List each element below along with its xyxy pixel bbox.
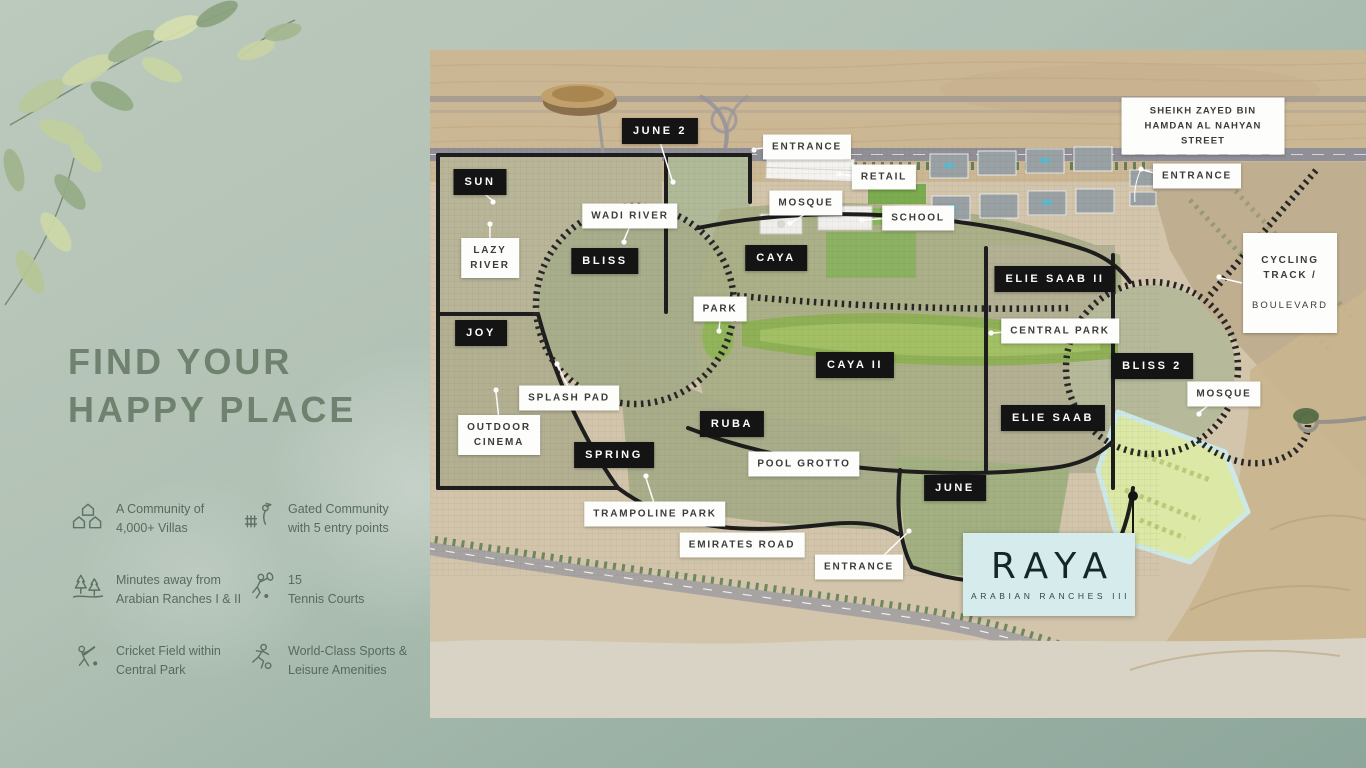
feature-tennis-courts: 15 Tennis Courts: [242, 569, 415, 609]
cycling-track-line1: CYCLING TRACK /: [1252, 253, 1328, 283]
district-label-caya-ii: CAYA II: [816, 352, 894, 378]
page-title-line1: FIND YOUR: [68, 338, 356, 386]
page-title-line2: HAPPY PLACE: [68, 386, 356, 434]
amenity-label-splash-pad: SPLASH PAD: [519, 386, 619, 411]
amenity-label-school: SCHOOL: [882, 206, 954, 231]
district-label-elie-saab: ELIE SAAB: [1001, 405, 1105, 431]
amenity-label-mosque-right: MOSQUE: [1187, 382, 1260, 407]
feature-list: A Community of 4,000+ Villas Gated Commu…: [70, 498, 415, 680]
feature-gated-community: Gated Community with 5 entry points: [242, 498, 415, 538]
sports-icon: [242, 640, 278, 676]
amenity-label-central-park: CENTRAL PARK: [1001, 319, 1119, 344]
district-label-june: JUNE: [924, 475, 986, 501]
road-label-emirates-road: EMIRATES ROAD: [680, 533, 805, 558]
district-label-bliss-2: BLISS 2: [1111, 353, 1193, 379]
amenity-label-outdoor-cinema: OUTDOOR CINEMA: [458, 415, 540, 455]
raya-logo-subtitle: ARABIAN RANCHES III: [968, 591, 1130, 601]
amenity-label-wadi-river: WADI RIVER: [582, 204, 677, 229]
amenity-label-pool-grotto: POOL GROTTO: [748, 452, 859, 477]
page-title: FIND YOUR HAPPY PLACE: [68, 338, 356, 434]
amenity-label-mosque-top: MOSQUE: [769, 191, 842, 216]
page: { "page": { "background_top": "#bcc9bd",…: [0, 0, 1366, 768]
district-label-ruba: RUBA: [700, 411, 764, 437]
sand-fade-graphic: [430, 638, 1366, 718]
gated-community-icon: [242, 498, 278, 534]
amenity-label-park: PARK: [694, 297, 747, 322]
entrance-label-top-right: ENTRANCE: [1153, 164, 1241, 189]
feature-community-villas: A Community of 4,000+ Villas: [70, 498, 242, 538]
feature-text: Gated Community with 5 entry points: [288, 498, 389, 538]
district-label-june2: JUNE 2: [622, 118, 698, 144]
community-villas-icon: [70, 498, 106, 534]
entrance-label-bottom: ENTRANCE: [815, 555, 903, 580]
cricket-icon: [70, 640, 106, 676]
district-label-elie-saab-ii: ELIE SAAB II: [994, 266, 1115, 292]
feature-text: Minutes away from Arabian Ranches I & II: [116, 569, 241, 609]
district-label-caya: CAYA: [745, 245, 807, 271]
feature-world-class-sports: World-Class Sports & Leisure Amenities: [242, 640, 415, 680]
feature-text: A Community of 4,000+ Villas: [116, 498, 204, 538]
feature-cricket-field: Cricket Field within Central Park: [70, 640, 242, 680]
district-label-joy: JOY: [455, 320, 507, 346]
feature-text: 15 Tennis Courts: [288, 569, 364, 609]
amenity-label-retail: RETAIL: [852, 165, 916, 190]
amenity-label-cycling-track: CYCLING TRACK / BOULEVARD: [1243, 233, 1337, 333]
district-label-bliss: BLISS: [571, 248, 638, 274]
entrance-label-top-left: ENTRANCE: [763, 135, 851, 160]
tennis-icon: [242, 569, 278, 605]
masterplan-map: JUNE 2 SUN BLISS JOY CAYA CAYA II ELIE S…: [430, 50, 1366, 718]
district-label-sun: SUN: [453, 169, 506, 195]
raya-logo-box: RAYA ARABIAN RANCHES III: [963, 533, 1135, 616]
feature-minutes-away: Minutes away from Arabian Ranches I & II: [70, 569, 242, 609]
amenity-label-lazy-river: LAZY RIVER: [461, 238, 519, 278]
trees-icon: [70, 569, 106, 605]
raya-brand-logo: RAYA: [982, 549, 1116, 585]
feature-text: Cricket Field within Central Park: [116, 640, 221, 680]
feature-text: World-Class Sports & Leisure Amenities: [288, 640, 407, 680]
amenity-label-trampoline-park: TRAMPOLINE PARK: [584, 502, 725, 527]
district-label-spring: SPRING: [574, 442, 654, 468]
watercolor-leaves-decoration: [0, 0, 310, 320]
road-label-sheikh-zayed: SHEIKH ZAYED BIN HAMDAN AL NAHYAN STREET: [1122, 98, 1285, 155]
cycling-track-line2: BOULEVARD: [1252, 298, 1328, 313]
